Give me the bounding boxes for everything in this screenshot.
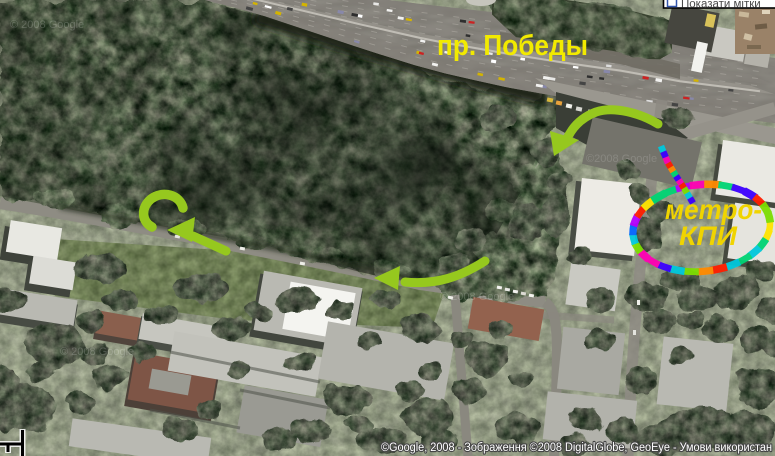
svg-text:©2008 Google: ©2008 Google: [586, 153, 657, 165]
svg-text:©Google, 2008 - Зображення ©20: ©Google, 2008 - Зображення ©2008 Digital…: [381, 442, 772, 454]
svg-text:© 2008 Google: © 2008 Google: [60, 346, 134, 358]
svg-text:пр. Победы: пр. Победы: [437, 30, 588, 62]
svg-text:КПИ: КПИ: [679, 221, 738, 251]
svg-text:© 2008 Google: © 2008 Google: [440, 291, 514, 303]
svg-text:© 2008 Google: © 2008 Google: [10, 19, 84, 31]
svg-text:Показати мітки: Показати мітки: [681, 0, 761, 11]
